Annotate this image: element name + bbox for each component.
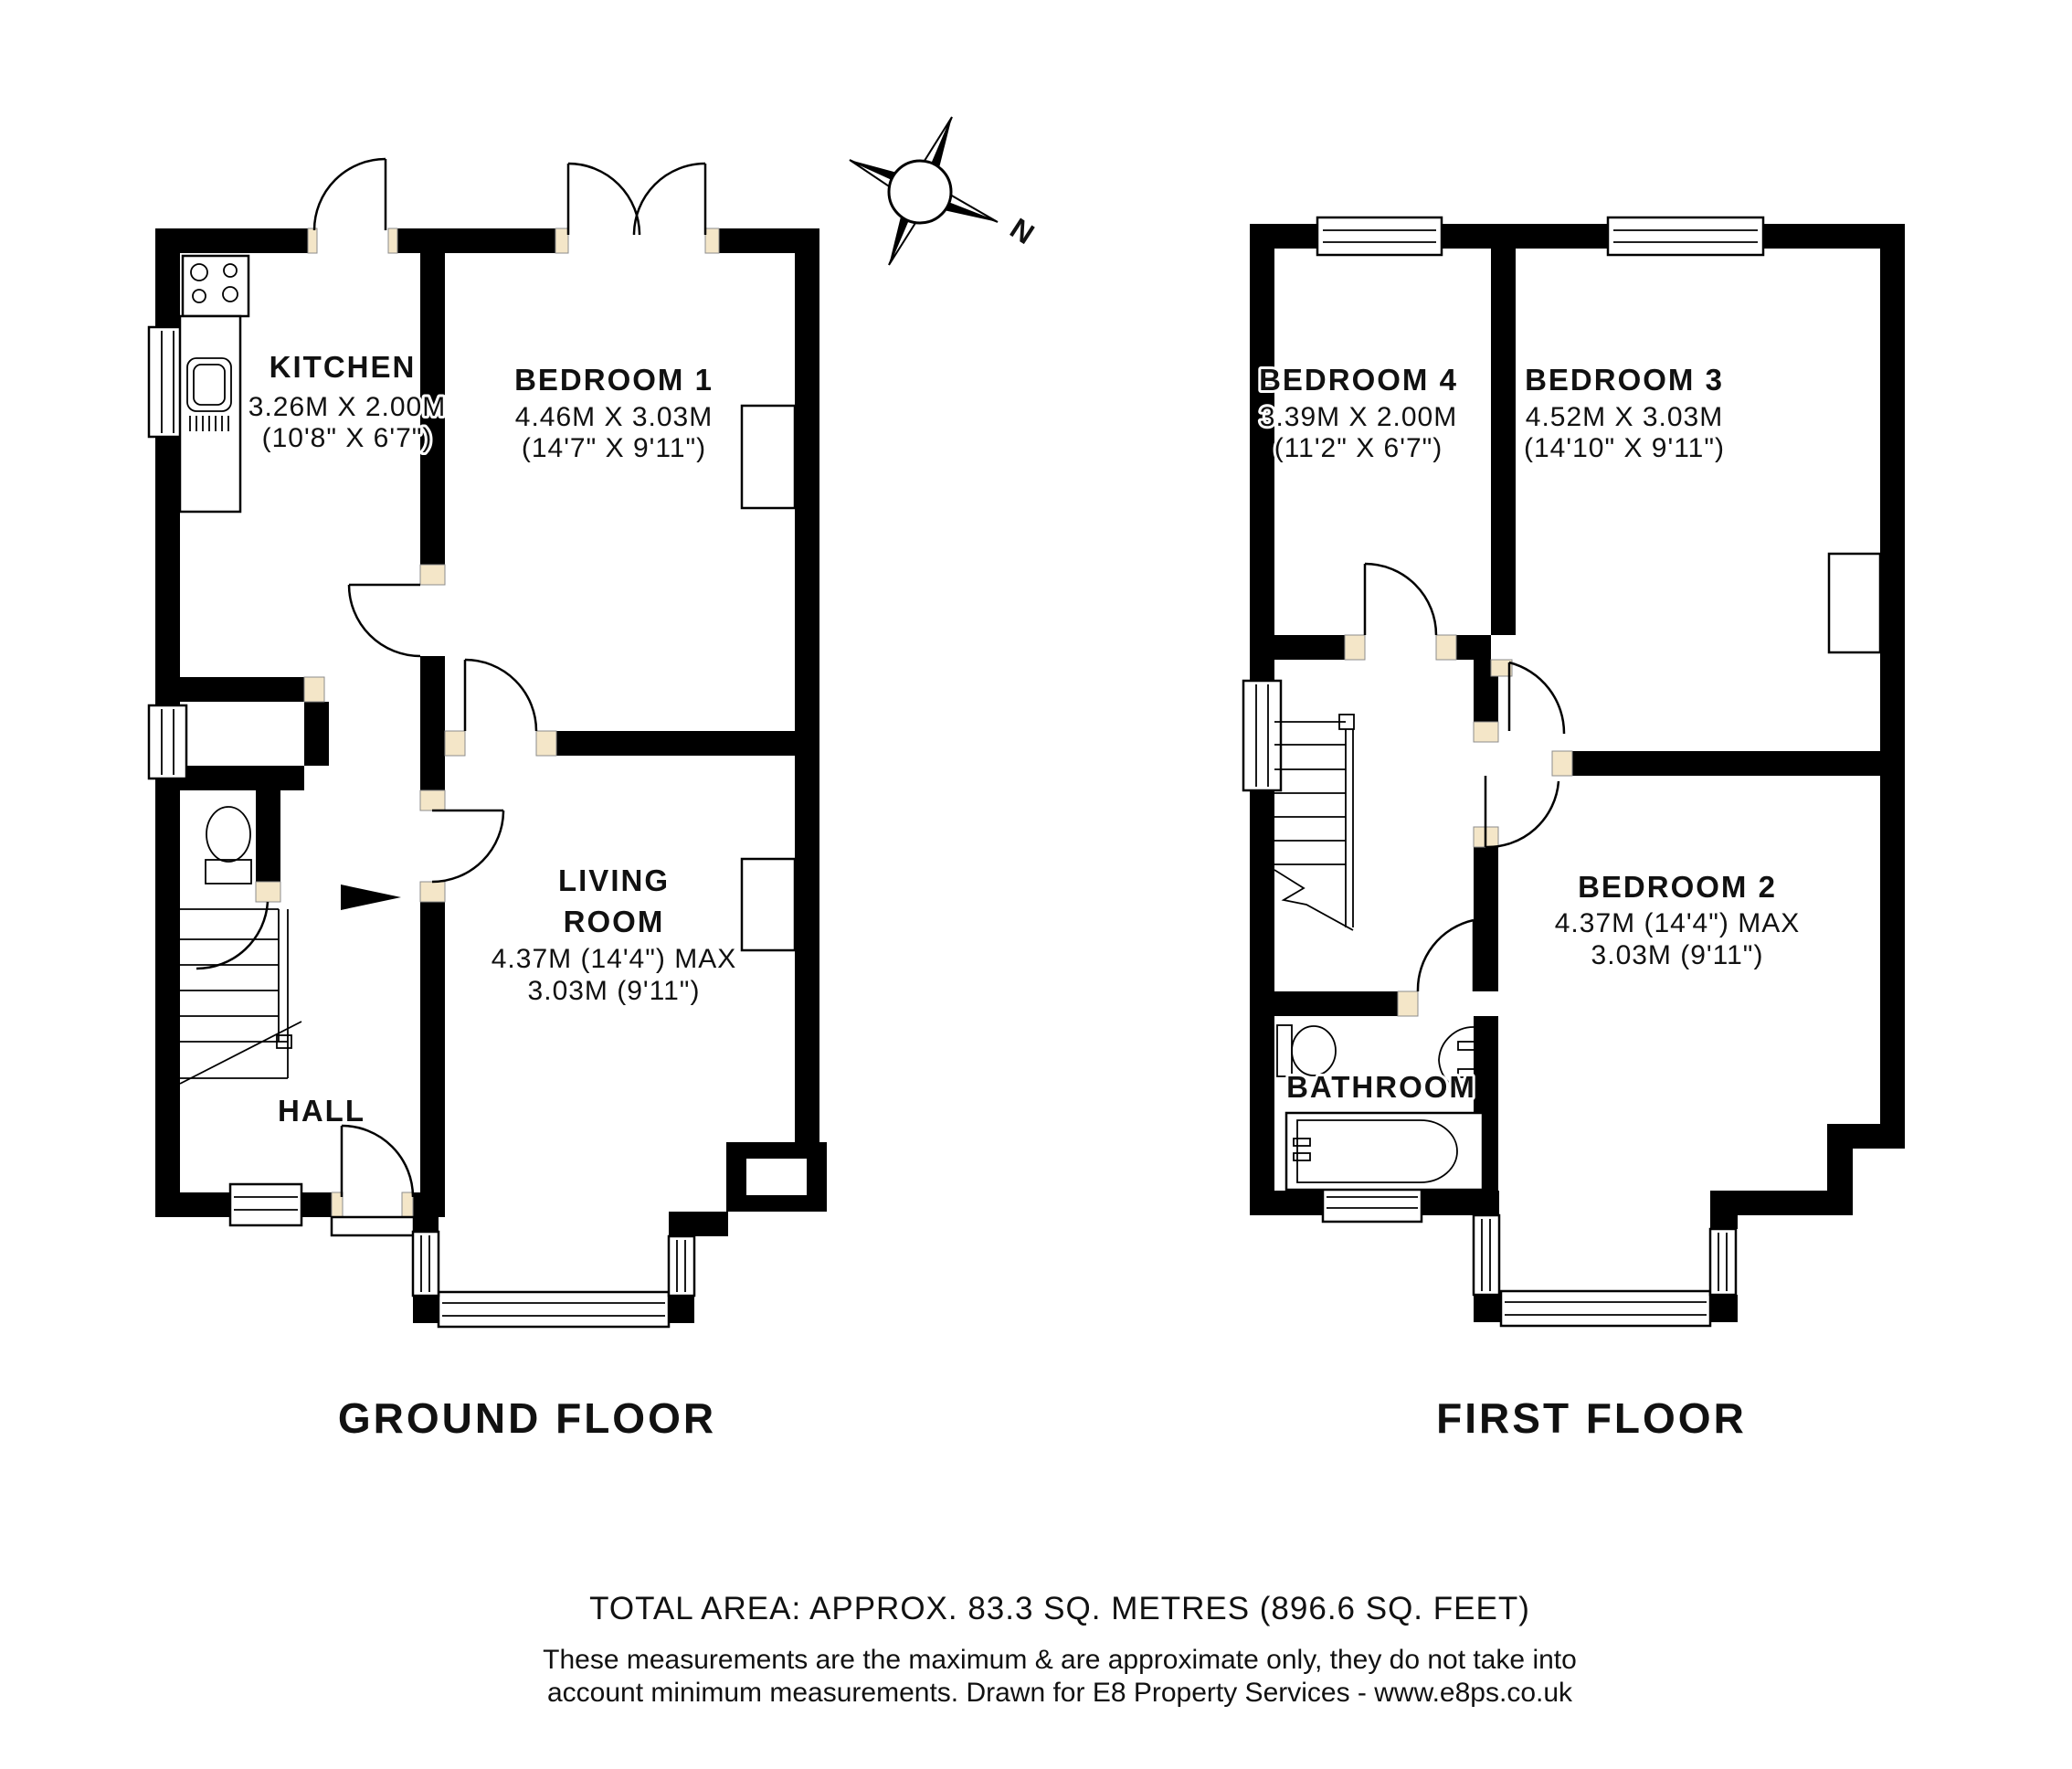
room-label-bedroom-2: BEDROOM 2 (1578, 870, 1777, 904)
room-dim-bedroom-2-1: 4.37M (14'4") MAX (1555, 908, 1800, 938)
room-label-bathroom: BATHROOM (1286, 1070, 1476, 1104)
north-label: N (1004, 211, 1040, 250)
room-label-living-room-2: ROOM (564, 905, 665, 938)
kitchen-fixtures (180, 256, 248, 512)
room-label-bedroom-3: BEDROOM 3 (1525, 363, 1724, 397)
floor-plan-image: KITCHEN 3.26M X 2.00M (10'8" X 6'7") BED… (0, 0, 2072, 1769)
room-label-bedroom-4: BEDROOM 4 (1259, 363, 1458, 397)
disclaimer-line-1: These measurements are the maximum & are… (543, 1645, 1577, 1675)
room-dim-bedroom-3-1: 4.52M X 3.03M (1526, 402, 1723, 432)
ground-floor-chimney-breasts (742, 406, 795, 950)
ground-floor-plan: KITCHEN 3.26M X 2.00M (10'8" X 6'7") BED… (149, 159, 827, 1327)
first-floor-title: FIRST FLOOR (1436, 1394, 1747, 1442)
stairs-direction-arrow (341, 884, 401, 910)
kitchen-sink (180, 316, 240, 512)
room-dim-bedroom-4-2: (11'2" X 6'7") (1274, 433, 1443, 463)
bathroom-toilet (1277, 1025, 1336, 1076)
bathtub (1286, 1113, 1483, 1190)
first-floor-doors (1365, 564, 1564, 991)
room-dim-bedroom-3-2: (14'10" X 9'11") (1524, 433, 1725, 463)
room-dim-bedroom-1-1: 4.46M X 3.03M (515, 402, 713, 432)
bathroom-fixtures (1277, 1025, 1483, 1190)
first-floor-chimney-breast (1829, 554, 1880, 652)
north-arrow: N (850, 117, 1040, 265)
disclaimer-line-2: account minimum measurements. Drawn for … (547, 1678, 1573, 1708)
room-label-hall: HALL (278, 1094, 365, 1128)
room-label-living-room-1: LIVING (558, 863, 670, 897)
room-label-bedroom-1: BEDROOM 1 (514, 363, 714, 397)
room-dim-bedroom-2-2: 3.03M (9'11") (1591, 940, 1764, 970)
ground-floor-walls (155, 228, 827, 1236)
room-label-kitchen: KITCHEN (270, 350, 417, 384)
ground-floor-title: GROUND FLOOR (338, 1394, 716, 1442)
room-dim-living-room-2: 3.03M (9'11") (528, 976, 701, 1006)
room-dim-bedroom-4-1: 3.39M X 2.00M (1260, 402, 1457, 432)
total-area-text: TOTAL AREA: APPROX. 83.3 SQ. METRES (896… (589, 1591, 1530, 1626)
stove (183, 256, 248, 316)
wc-toilet (206, 807, 251, 884)
first-floor-stairs (1274, 715, 1354, 930)
first-floor-plan: BEDROOM 4 3.39M X 2.00M (11'2" X 6'7") B… (1243, 217, 1905, 1326)
room-dim-living-room-1: 4.37M (14'4") MAX (492, 944, 736, 974)
room-dim-kitchen-2: (10'8" X 6'7") (262, 423, 433, 453)
room-dim-kitchen-1: 3.26M X 2.00M (248, 392, 446, 422)
ground-floor-stairs (180, 884, 401, 1084)
room-dim-bedroom-1-2: (14'7" X 9'11") (522, 433, 706, 463)
